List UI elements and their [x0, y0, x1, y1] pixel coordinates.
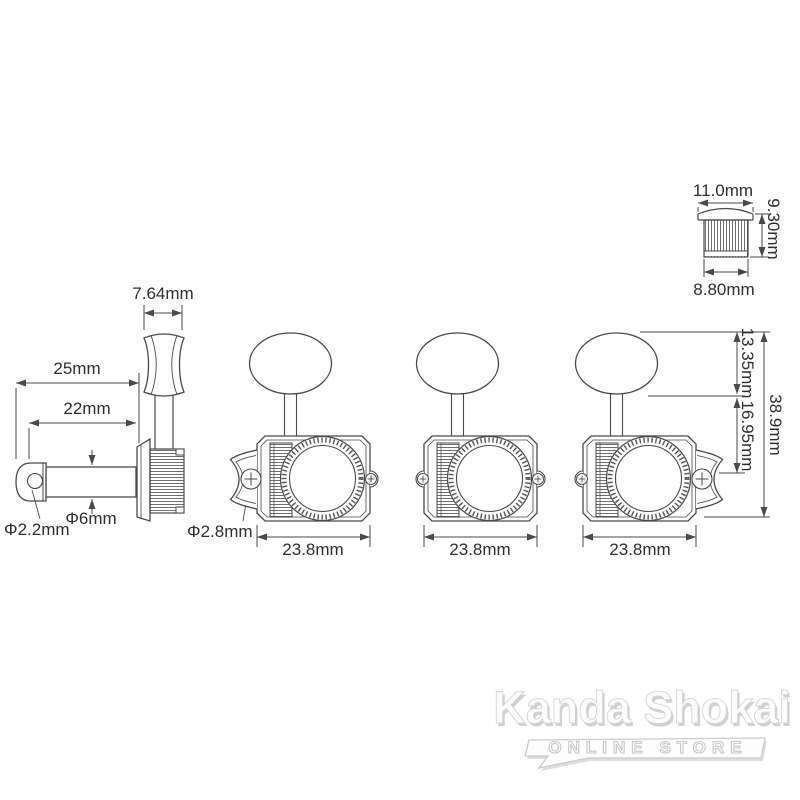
dim-body-width-2: 23.8mm	[449, 540, 510, 559]
watermark-subtitle: ONLINE STORE	[548, 738, 747, 757]
dim-body-width-3: 23.8mm	[609, 540, 670, 559]
dim-post-length: 22mm	[63, 399, 110, 418]
button-stem	[285, 393, 297, 438]
button-stem	[611, 393, 623, 438]
dim-overall-height: 38.9mm	[766, 394, 785, 455]
dim-bushing-height: 9.30mm	[764, 198, 783, 259]
bushing-diagram	[698, 209, 753, 258]
diagram-svg: 7.64mm 25mm 22mm Φ2.2mm Φ6mm Φ2.8mm	[0, 0, 800, 800]
side-button-stem	[155, 392, 173, 449]
button-stem	[452, 393, 464, 438]
side-plate	[137, 439, 150, 521]
tuner-button	[576, 333, 658, 394]
string-post	[46, 467, 136, 497]
side-housing	[150, 449, 184, 513]
dim-bushing-top-dia: 11.0mm	[693, 181, 753, 200]
bushing-flange	[698, 209, 753, 215]
dim-button-height: 13.35mm	[738, 328, 757, 399]
string-hole	[28, 474, 43, 489]
side-button	[144, 334, 184, 396]
dim-housing-height: 16.95mm	[738, 401, 757, 472]
watermark: Kanda Shokai Kanda Shokai ONLINE STORE	[493, 682, 793, 771]
dim-post-total-length: 25mm	[53, 359, 100, 378]
dim-bushing-body-dia: 8.80mm	[693, 280, 754, 299]
tuner-button	[250, 333, 332, 394]
dim-screw-hole-dia: Φ2.8mm	[187, 522, 253, 541]
front-tuner-2	[416, 333, 545, 521]
watermark-brand: Kanda Shokai	[493, 682, 791, 733]
tuner-dimension-diagram: 7.64mm 25mm 22mm Φ2.2mm Φ6mm Φ2.8mm	[0, 0, 800, 800]
dim-knob-thickness: 7.64mm	[132, 284, 193, 303]
dim-string-hole-dia: Φ2.2mm	[4, 520, 70, 539]
front-tuner-3	[575, 333, 723, 521]
dim-body-width-1: 23.8mm	[282, 540, 343, 559]
dim-post-dia: Φ6mm	[65, 509, 116, 528]
tuner-button	[417, 333, 499, 394]
front-tuner-1	[231, 333, 379, 521]
